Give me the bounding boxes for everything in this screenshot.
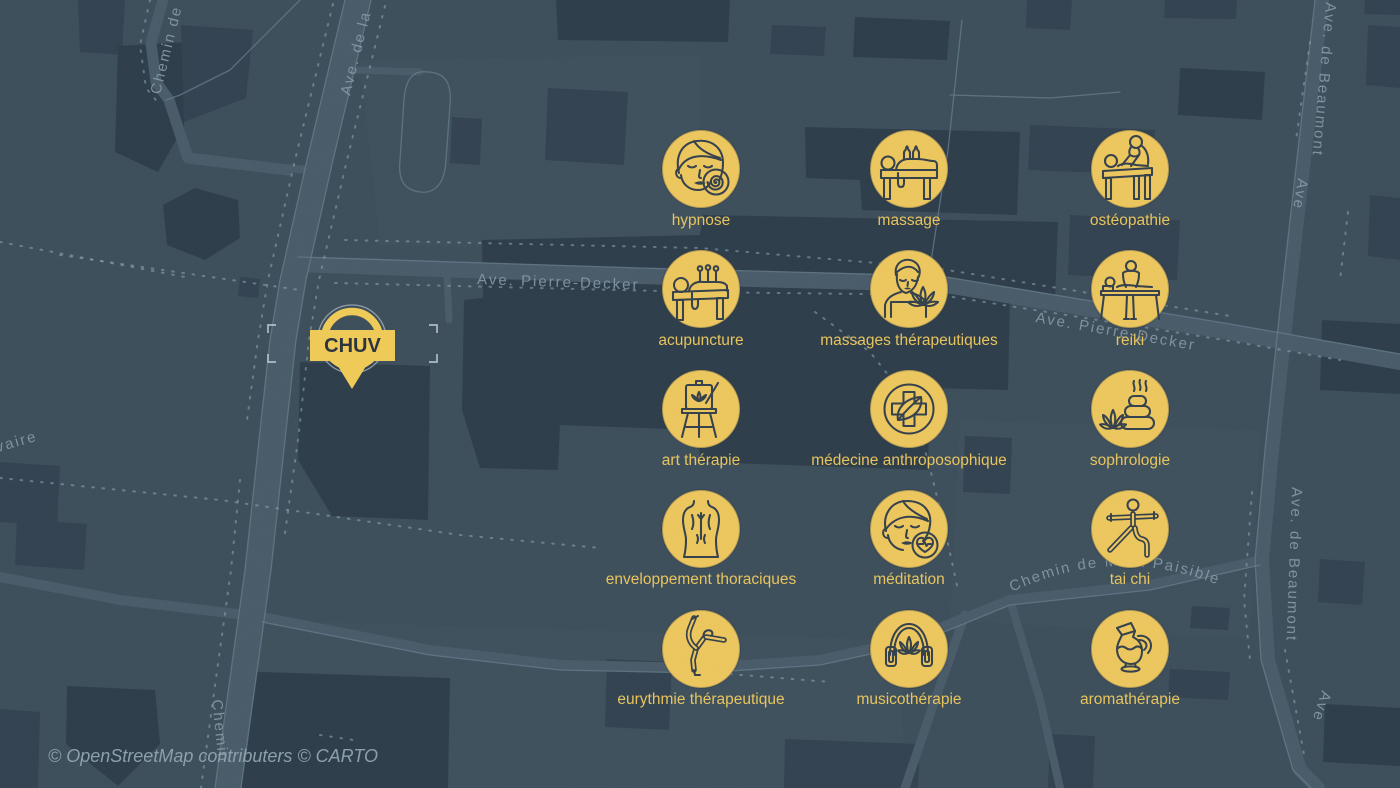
svg-text:© OpenStreetMap contributers ©: © OpenStreetMap contributers © CARTO [48,746,378,766]
